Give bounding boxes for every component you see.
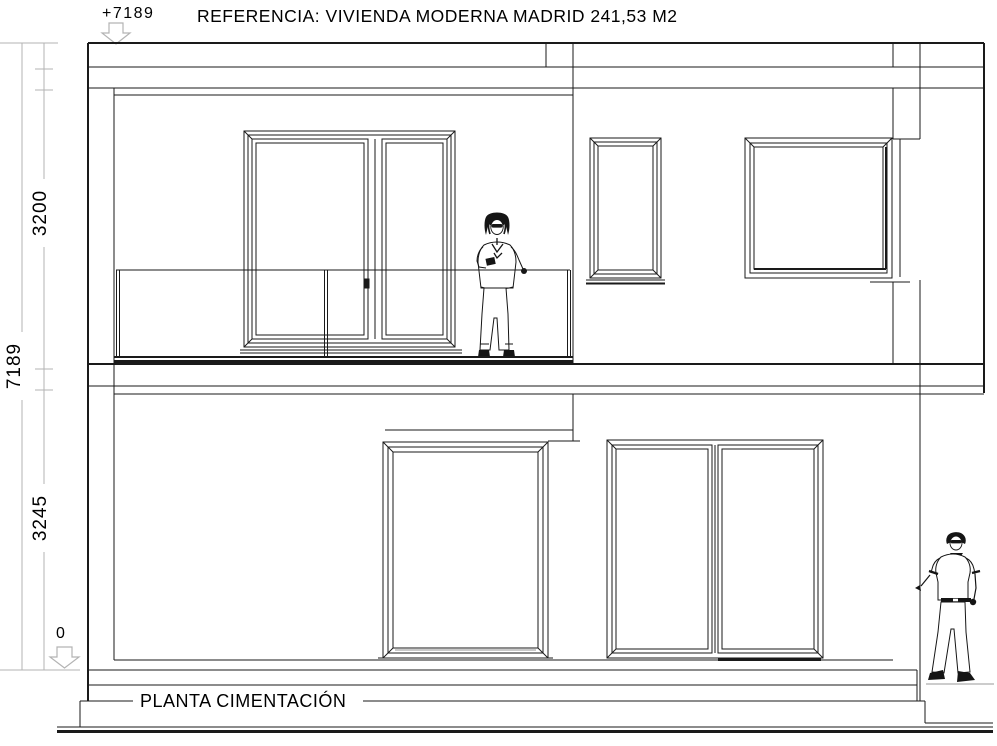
elevation-drawing: +7189 REFERENCIA: VIVIENDA MODERNA MADRI… bbox=[0, 0, 997, 746]
level-marker-zero-arrow bbox=[50, 647, 79, 668]
foundation-caption: PLANTA CIMENTACIÓN bbox=[140, 691, 346, 712]
building-outline bbox=[57, 43, 993, 732]
woman-figure bbox=[477, 213, 527, 358]
drawing-title: REFERENCIA: VIVIENDA MODERNA MADRID 241,… bbox=[197, 6, 678, 27]
man-figure bbox=[915, 532, 994, 684]
dimension-total-height: 7189 bbox=[4, 332, 26, 400]
lower-left-window bbox=[378, 394, 580, 658]
level-zero-label: 0 bbox=[56, 625, 66, 643]
upper-right-narrow-window bbox=[586, 138, 665, 284]
upper-left-window bbox=[240, 131, 462, 353]
upper-right-large-window bbox=[745, 138, 892, 278]
level-top-label: +7189 bbox=[102, 5, 154, 23]
dimension-ground-floor: 3245 bbox=[30, 484, 52, 552]
drawing-canvas bbox=[0, 0, 997, 746]
lower-right-double-window bbox=[607, 440, 823, 660]
level-marker-top-arrow bbox=[102, 23, 130, 44]
dimension-upper-floor: 3200 bbox=[30, 179, 52, 247]
